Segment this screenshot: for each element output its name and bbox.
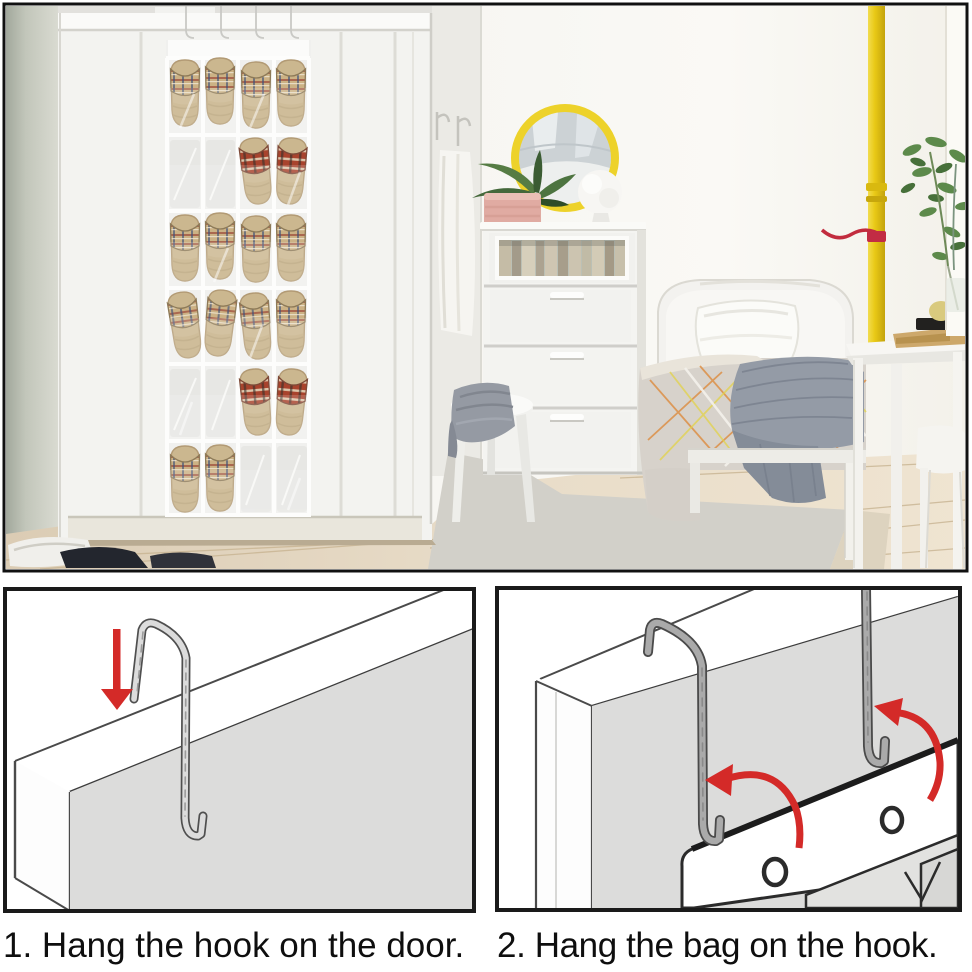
svg-text:1. Hang the hook on the door.: 1. Hang the hook on the door. [3, 926, 464, 965]
svg-text:2. Hang the bag on the hook.: 2. Hang the bag on the hook. [497, 926, 937, 965]
